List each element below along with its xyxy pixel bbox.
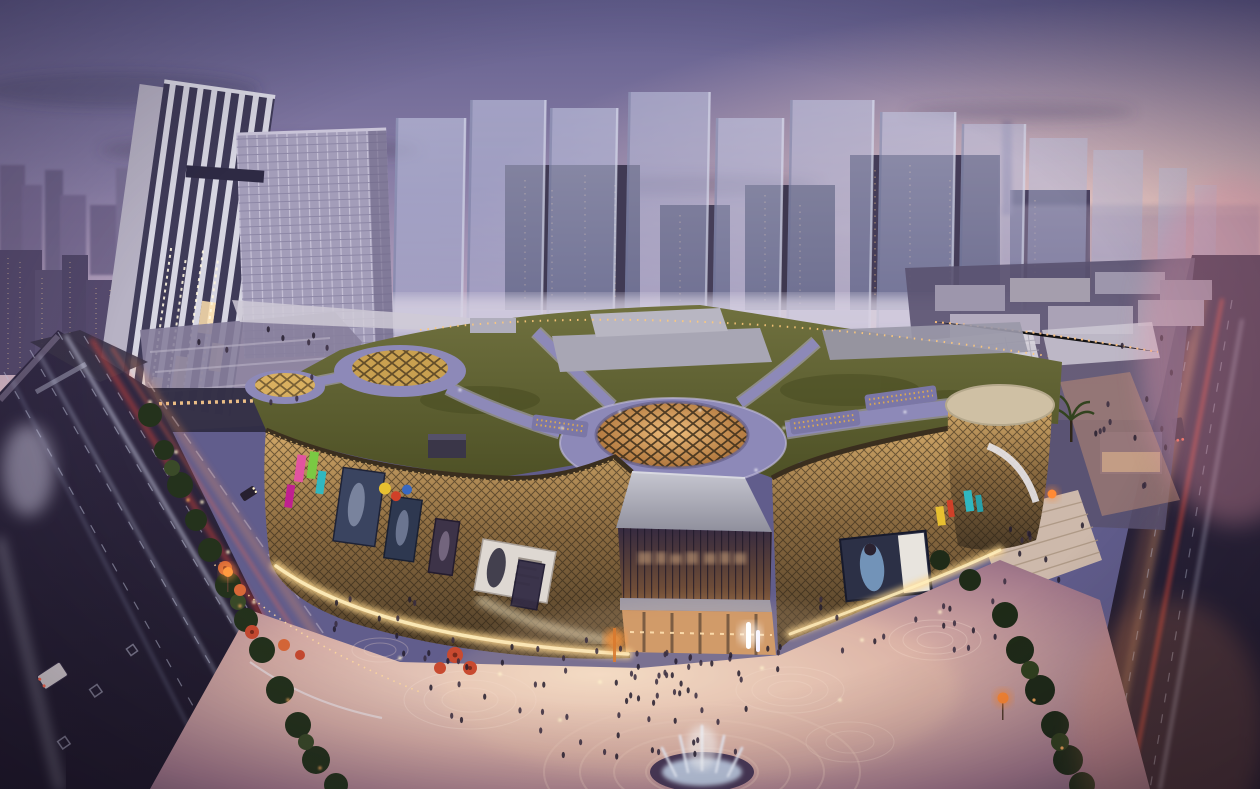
mall-rendering [0,0,1260,789]
rendering-canvas [0,0,1260,789]
atmosphere [0,0,1260,789]
